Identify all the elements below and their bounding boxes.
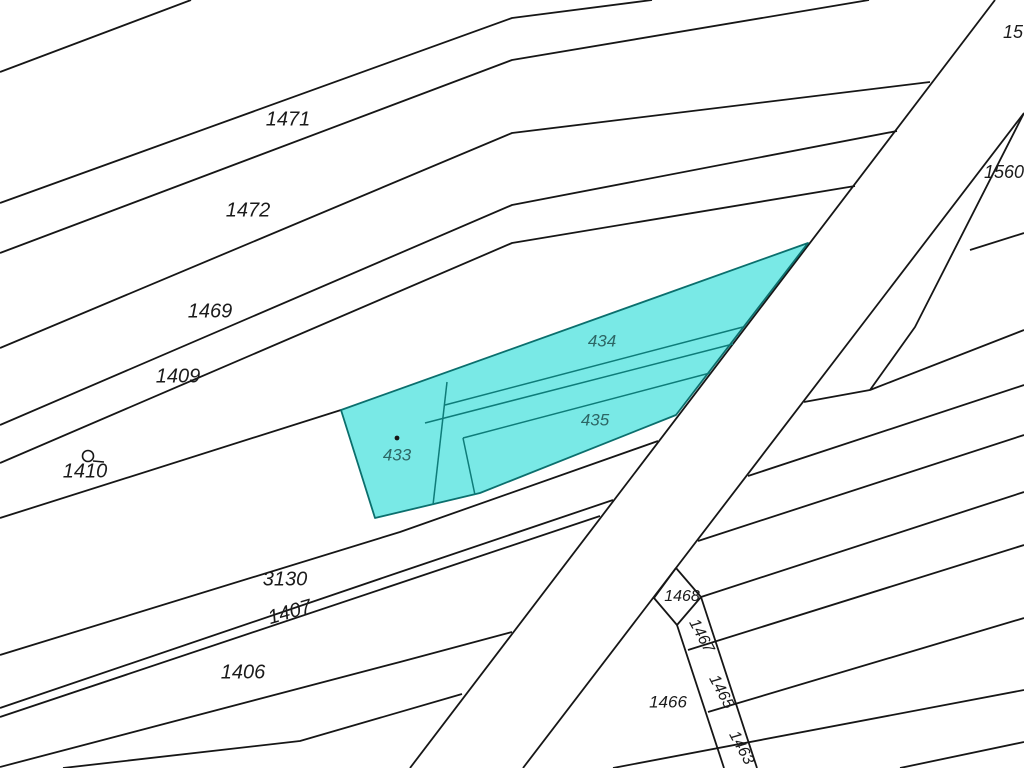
parcel-label-433[interactable]: 433 [383,445,412,464]
parcel-label-1471[interactable]: 1471 [266,108,311,130]
parcel-label-15[interactable]: 15 [1003,22,1024,42]
parcel-label-1469[interactable]: 1469 [188,300,233,322]
parcel-label-434[interactable]: 434 [588,331,616,350]
parcel-label-435[interactable]: 435 [581,410,610,429]
cadastral-map: 1471147214691409141031301407140643343443… [0,0,1024,768]
parcel-label-1560[interactable]: 1560 [984,162,1024,182]
parcel-label-1409[interactable]: 1409 [156,365,201,387]
map-viewport: 1471147214691409141031301407140643343443… [0,0,1024,768]
parcel-label-1468[interactable]: 1468 [664,588,700,605]
parcel-point-marker [395,436,400,441]
parcel-label-1406[interactable]: 1406 [221,661,266,683]
parcel-label-1410[interactable]: 1410 [63,460,108,482]
parcel-label-1472[interactable]: 1472 [226,199,271,221]
parcel-label-3130[interactable]: 3130 [263,568,308,590]
parcel-label-1466[interactable]: 1466 [649,692,687,711]
